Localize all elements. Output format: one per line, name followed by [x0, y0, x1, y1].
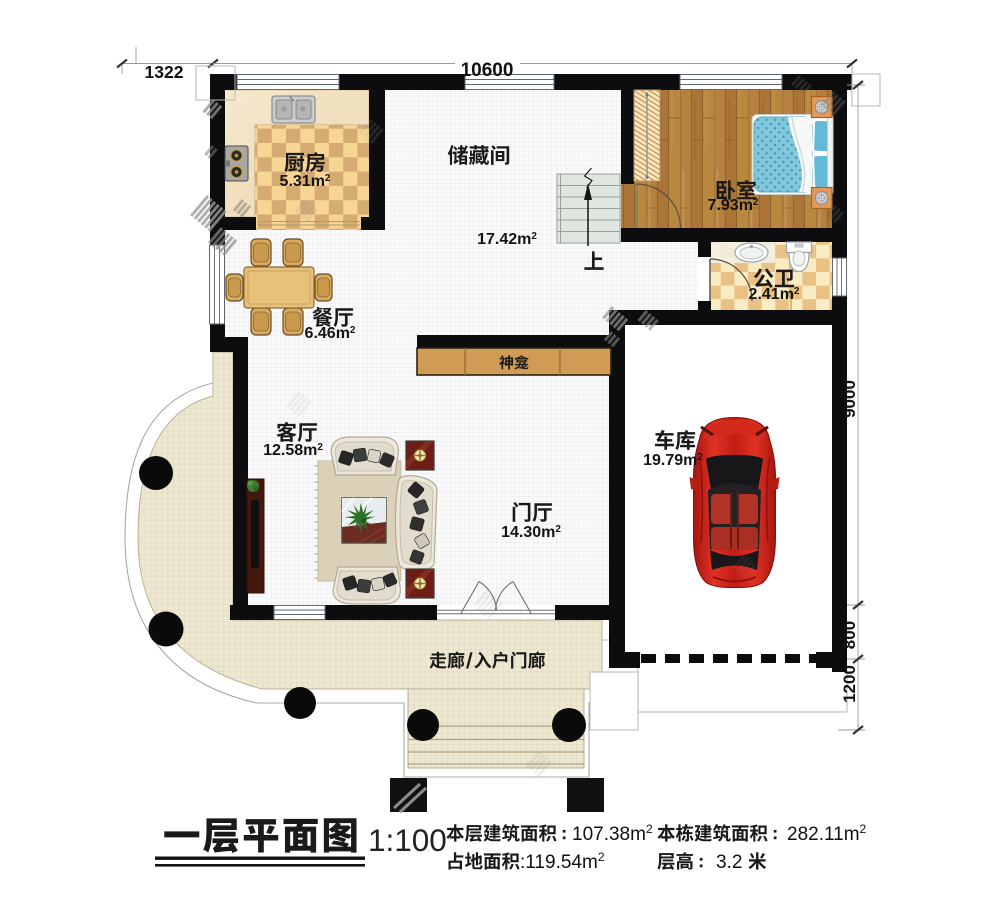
- svg-text:107.38m2: 107.38m2: [572, 822, 653, 845]
- svg-text:14.30m2: 14.30m2: [501, 524, 561, 541]
- svg-text:7.93m2: 7.93m2: [708, 197, 759, 214]
- svg-text:1:100: 1:100: [368, 822, 447, 858]
- svg-text:1322: 1322: [145, 62, 184, 82]
- svg-text:282.11m2: 282.11m2: [787, 822, 867, 845]
- svg-text:6.46m2: 6.46m2: [305, 325, 356, 342]
- svg-text:3.2: 3.2: [716, 852, 742, 873]
- svg-text:5.31m2: 5.31m2: [280, 173, 331, 190]
- svg-text:800: 800: [840, 621, 859, 649]
- svg-text:10600: 10600: [461, 60, 514, 81]
- svg-text:1200: 1200: [840, 665, 859, 703]
- svg-text::119.54m2: :119.54m2: [520, 850, 605, 873]
- svg-text:12.58m2: 12.58m2: [263, 442, 323, 459]
- svg-text:17.42m2: 17.42m2: [477, 231, 537, 248]
- svg-text:2.41m2: 2.41m2: [749, 286, 800, 303]
- svg-text:9000: 9000: [840, 380, 859, 418]
- svg-text:19.79m2: 19.79m2: [643, 452, 703, 469]
